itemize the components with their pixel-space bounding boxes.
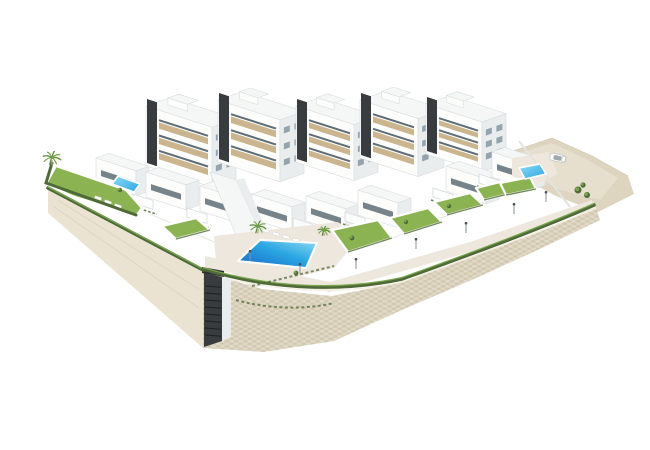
shrub [294,271,299,276]
shrub [404,220,408,224]
shrub [118,188,122,192]
shrub [584,192,590,198]
elevator-core [147,99,157,166]
shrub [580,182,585,187]
shaft-side-column [222,277,231,341]
elevator-core [297,99,307,162]
shrub [350,236,355,241]
shrub [447,204,451,208]
street-lamp [545,191,548,202]
street-lamp [465,222,468,233]
shrub [575,187,582,194]
palm-tree [43,152,60,166]
street-lamp [415,238,418,249]
elevator-core [427,97,437,154]
elevator-core [219,93,229,162]
street-lamp [355,258,358,269]
render-canvas: New-build residential complex - aerial 3… [0,0,650,450]
street-lamp [513,203,516,214]
architectural-rendering: New-build residential complex - aerial 3… [0,0,650,450]
elevator-core [361,93,371,158]
